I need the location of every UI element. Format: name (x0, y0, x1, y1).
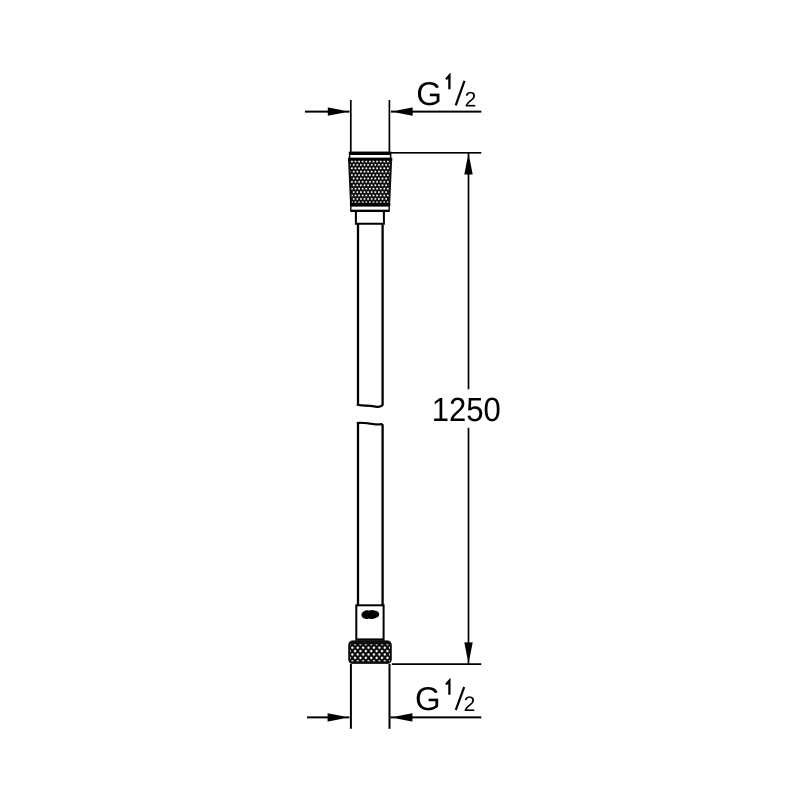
svg-text:G: G (416, 75, 442, 112)
svg-text:2: 2 (464, 693, 476, 716)
svg-text:1250: 1250 (432, 392, 501, 429)
svg-text:2: 2 (465, 88, 477, 111)
svg-text:G: G (415, 680, 441, 717)
